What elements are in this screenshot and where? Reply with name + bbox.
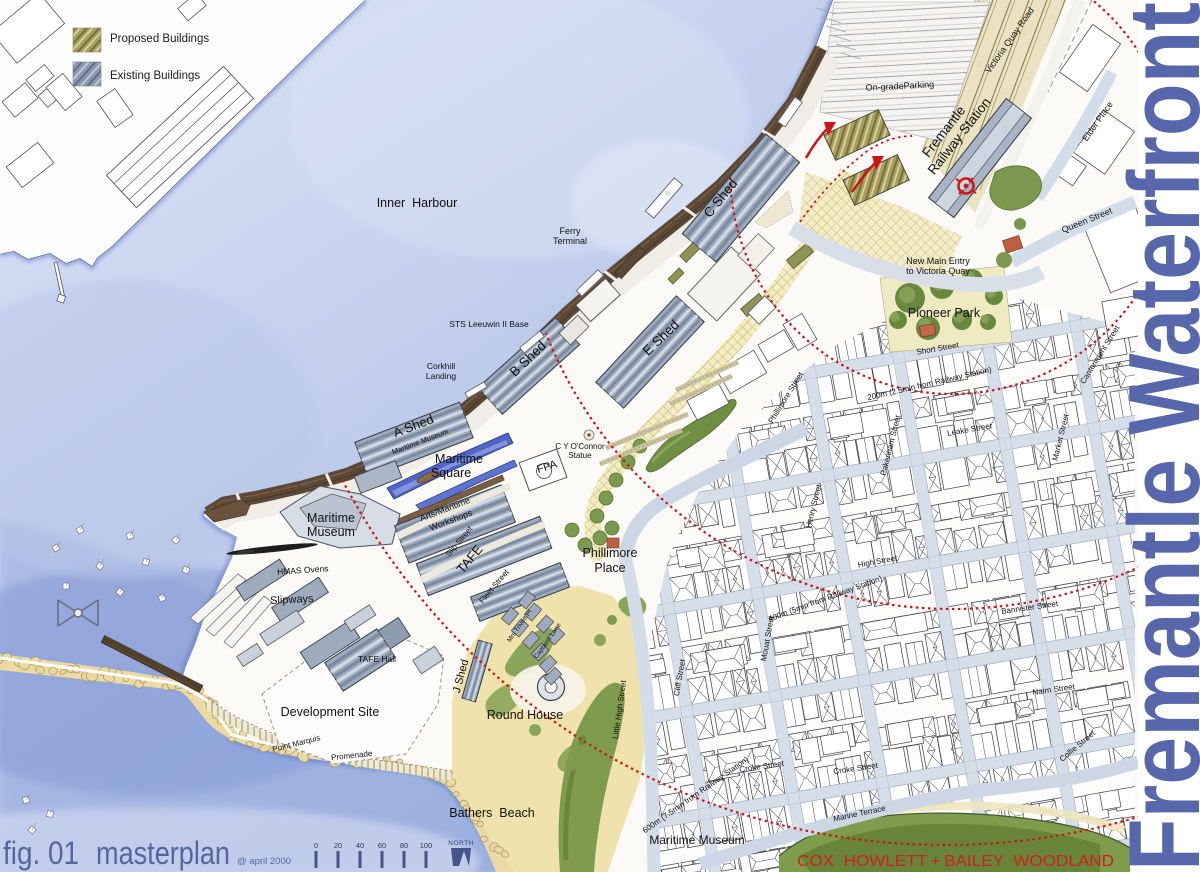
- svg-text:@ april 2000: @ april 2000: [237, 856, 291, 867]
- svg-text:Landing: Landing: [426, 371, 457, 381]
- svg-text:Corkhill: Corkhill: [427, 361, 455, 371]
- svg-text:Fremantle Waterfront: Fremantle Waterfront: [1109, 2, 1200, 871]
- svg-text:Pioneer Park: Pioneer Park: [908, 306, 981, 320]
- svg-text:Maritime: Maritime: [435, 452, 483, 466]
- svg-text:NORTH: NORTH: [448, 840, 474, 847]
- svg-text:40: 40: [356, 841, 364, 850]
- svg-text:Museum: Museum: [307, 525, 355, 539]
- svg-text:C Y O'Connor: C Y O'Connor: [555, 442, 605, 451]
- svg-text:Square: Square: [431, 466, 471, 480]
- svg-text:New Main Entry: New Main Entry: [906, 256, 970, 266]
- svg-text:0: 0: [314, 841, 318, 850]
- svg-text:100: 100: [420, 841, 433, 850]
- svg-text:60: 60: [378, 841, 386, 850]
- svg-text:Existing Buildings: Existing Buildings: [110, 70, 200, 82]
- svg-text:masterplan: masterplan: [96, 835, 230, 871]
- svg-text:Place: Place: [594, 561, 625, 575]
- svg-text:Round House: Round House: [487, 708, 563, 722]
- svg-text:Statue: Statue: [568, 451, 592, 460]
- svg-text:80: 80: [400, 841, 408, 850]
- svg-text:Development Site: Development Site: [281, 705, 380, 719]
- svg-text:to Victoria Quay: to Victoria Quay: [906, 266, 970, 276]
- svg-text:Maritime Museum: Maritime Museum: [649, 833, 744, 847]
- svg-text:Ferry: Ferry: [560, 226, 581, 236]
- svg-text:Maritime: Maritime: [307, 511, 355, 525]
- svg-text:Proposed Buildings: Proposed Buildings: [110, 33, 209, 45]
- svg-text:20: 20: [334, 841, 342, 850]
- svg-text:Bathers Beach: Bathers Beach: [449, 806, 535, 820]
- svg-text:fig. 01: fig. 01: [3, 835, 79, 871]
- svg-text:Slipways: Slipways: [270, 593, 314, 607]
- svg-text:Inner Harbour: Inner Harbour: [377, 196, 458, 210]
- svg-text:COX HOWLETT + BAILEY WOODLAN: COX HOWLETT + BAILEY WOODLAND: [797, 853, 1114, 870]
- svg-text:TAFE Hall: TAFE Hall: [358, 654, 396, 664]
- svg-text:Phillimore: Phillimore: [583, 546, 638, 560]
- svg-text:STS Leeuwin II Base: STS Leeuwin II Base: [449, 319, 529, 329]
- svg-text:Terminal: Terminal: [553, 236, 587, 246]
